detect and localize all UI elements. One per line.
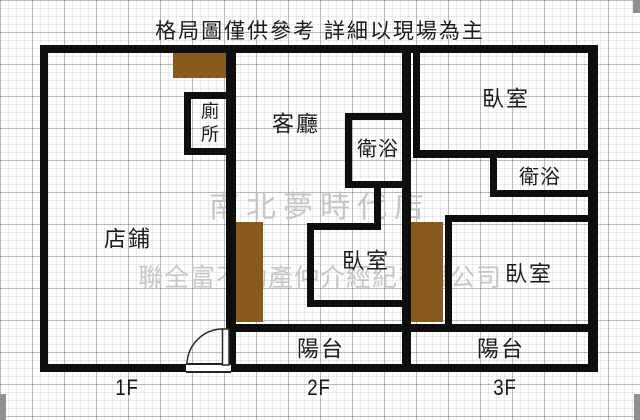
room-label-bathroom-2f: 衛浴: [357, 140, 399, 161]
room-label-bathroom-3f: 衛浴: [519, 168, 561, 189]
wall-3f-upper-bedroom-left: [413, 53, 420, 158]
floor-label-1f: 1F: [115, 375, 139, 401]
edge-artifact-bottom-right: [634, 394, 640, 420]
room-label-balcony-3f: 陽台: [477, 337, 525, 360]
edge-artifact-top-right: [633, 0, 640, 13]
watermark-store-name: 南北夢時代店: [209, 182, 431, 226]
room-label-living-room: 客廳: [272, 112, 320, 135]
room-label-toilet: 廁所: [200, 101, 220, 148]
door-swing-symbol: [185, 327, 231, 367]
room-label-balcony-2f: 陽台: [297, 337, 345, 360]
room-label-shop: 店鋪: [104, 227, 152, 250]
floor-label-3f: 3F: [493, 375, 517, 401]
stair-block-2f: [236, 222, 263, 322]
plan-disclaimer-title: 格局圖僅供參考 詳細以現場為主: [0, 15, 640, 45]
wall-2f-bath-bottom: [345, 181, 402, 188]
stair-block-1f: [173, 52, 226, 78]
room-label-bedroom-3f-upper: 臥室: [482, 87, 530, 110]
wall-toilet-left: [184, 92, 191, 155]
wall-2f-bath-left: [345, 113, 352, 188]
wall-2f-bedroom-top: [307, 223, 381, 230]
wall-divider-1f-2f: [226, 45, 236, 372]
wall-divider-2f-3f: [402, 45, 411, 372]
edge-artifact-bottom-left: [0, 394, 6, 420]
wall-2f-bath-top: [345, 113, 402, 120]
wall-3f-bath-bottom: [490, 190, 598, 197]
wall-balcony-top: [236, 324, 588, 332]
wall-3f-middle-divider: [445, 215, 598, 222]
room-label-bedroom-3f-lower: 臥室: [505, 262, 553, 285]
wall-outer-bottom: [40, 364, 598, 372]
wall-toilet-bottom: [184, 148, 226, 155]
wall-outer-top: [40, 45, 598, 53]
wall-outer-left: [40, 45, 48, 372]
wall-2f-bedroom-bottom: [307, 300, 402, 307]
wall-3f-upper-bedroom-bottom: [413, 150, 598, 158]
wall-3f-lower-bedroom-left: [445, 215, 452, 332]
room-label-bedroom-2f: 臥室: [342, 249, 390, 272]
wall-2f-bedroom-left: [307, 223, 314, 307]
floor-label-2f: 2F: [307, 375, 331, 401]
wall-outer-right: [588, 45, 598, 372]
stair-block-3f: [411, 222, 443, 322]
